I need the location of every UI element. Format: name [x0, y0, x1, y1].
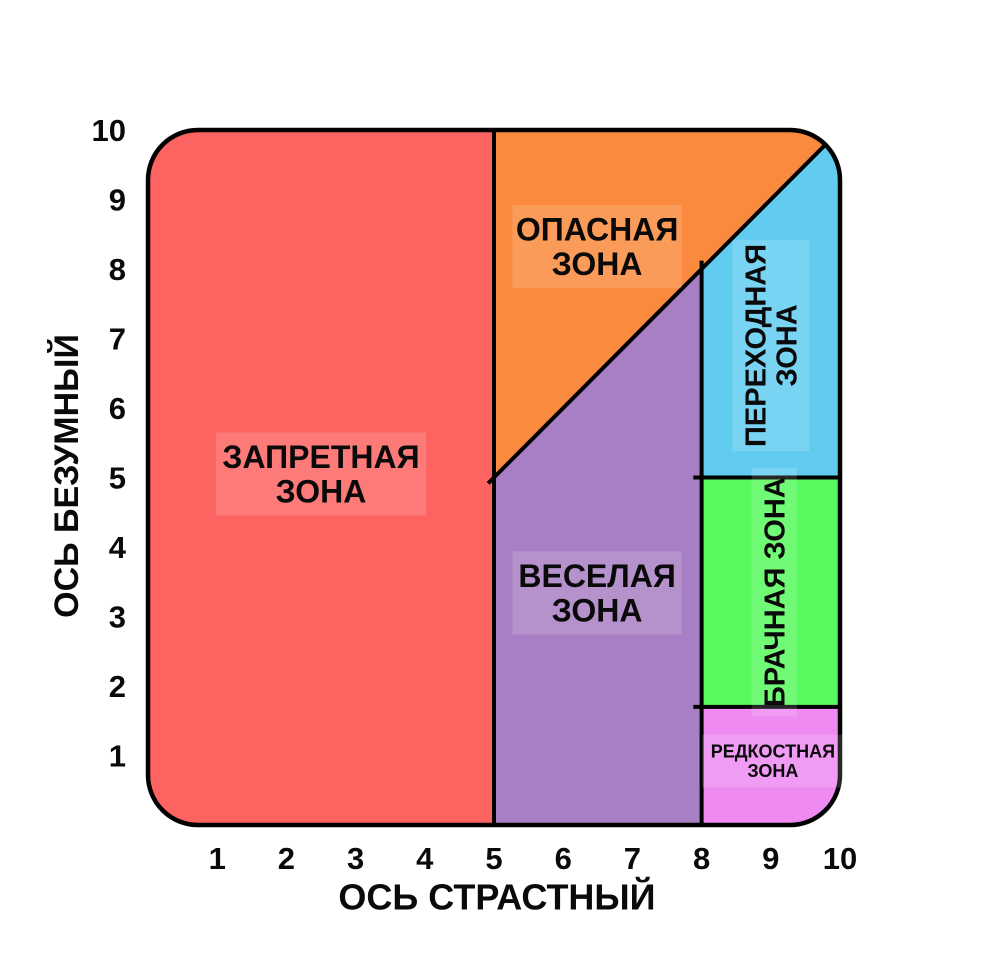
- matrix-plot: ЗАПРЕТНАЯЗОНАОПАСНАЯЗОНАВЕСЕЛАЯЗОНАПЕРЕХ…: [0, 0, 991, 953]
- y-tick-label-8: 8: [109, 252, 126, 287]
- y-tick-label-7: 7: [109, 321, 126, 356]
- unicorn-zone-label: ЗОНА: [747, 761, 798, 781]
- y-tick-label-3: 3: [109, 599, 126, 634]
- y-tick-label-5: 5: [109, 460, 126, 495]
- fun-zone-label: ЗОНА: [552, 592, 643, 628]
- y-tick-label-9: 9: [109, 182, 126, 217]
- x-tick-label-8: 8: [693, 841, 710, 876]
- y-axis-label: ОСЬ БЕЗУМНЫЙ: [47, 334, 86, 618]
- y-tick-label-2: 2: [109, 669, 126, 704]
- x-tick-label-7: 7: [624, 841, 641, 876]
- x-tick-label-9: 9: [762, 841, 779, 876]
- x-tick-label-1: 1: [209, 841, 226, 876]
- x-tick-label-3: 3: [347, 841, 364, 876]
- forbidden-zone-label: ЗАПРЕТНАЯ: [222, 439, 419, 475]
- marriage-zone-label: БРАЧНАЯ ЗОНА: [759, 477, 791, 707]
- x-tick-label-5: 5: [485, 841, 502, 876]
- forbidden-zone-label: ЗОНА: [276, 474, 367, 510]
- transition-zone-label: ПЕРЕХОДНАЯ: [740, 244, 772, 447]
- hot-crazy-matrix-chart: ЗАПРЕТНАЯЗОНАОПАСНАЯЗОНАВЕСЕЛАЯЗОНАПЕРЕХ…: [0, 0, 991, 953]
- x-axis-label: ОСЬ СТРАСТНЫЙ: [338, 876, 655, 918]
- y-tick-label-4: 4: [109, 530, 127, 565]
- danger-zone-label: ЗОНА: [552, 246, 643, 282]
- x-tick-label-10: 10: [823, 841, 857, 876]
- x-tick-label-6: 6: [555, 841, 572, 876]
- danger-zone-label: ОПАСНАЯ: [516, 212, 679, 248]
- unicorn-zone-label: РЕДКОСТНАЯ: [711, 742, 835, 762]
- y-tick-label-6: 6: [109, 391, 126, 426]
- y-tick-label-10: 10: [92, 113, 126, 148]
- transition-zone-label: ЗОНА: [772, 304, 804, 386]
- y-tick-label-1: 1: [109, 738, 126, 773]
- fun-zone-label: ВЕСЕЛАЯ: [518, 558, 675, 594]
- x-tick-label-4: 4: [416, 841, 434, 876]
- x-tick-label-2: 2: [278, 841, 295, 876]
